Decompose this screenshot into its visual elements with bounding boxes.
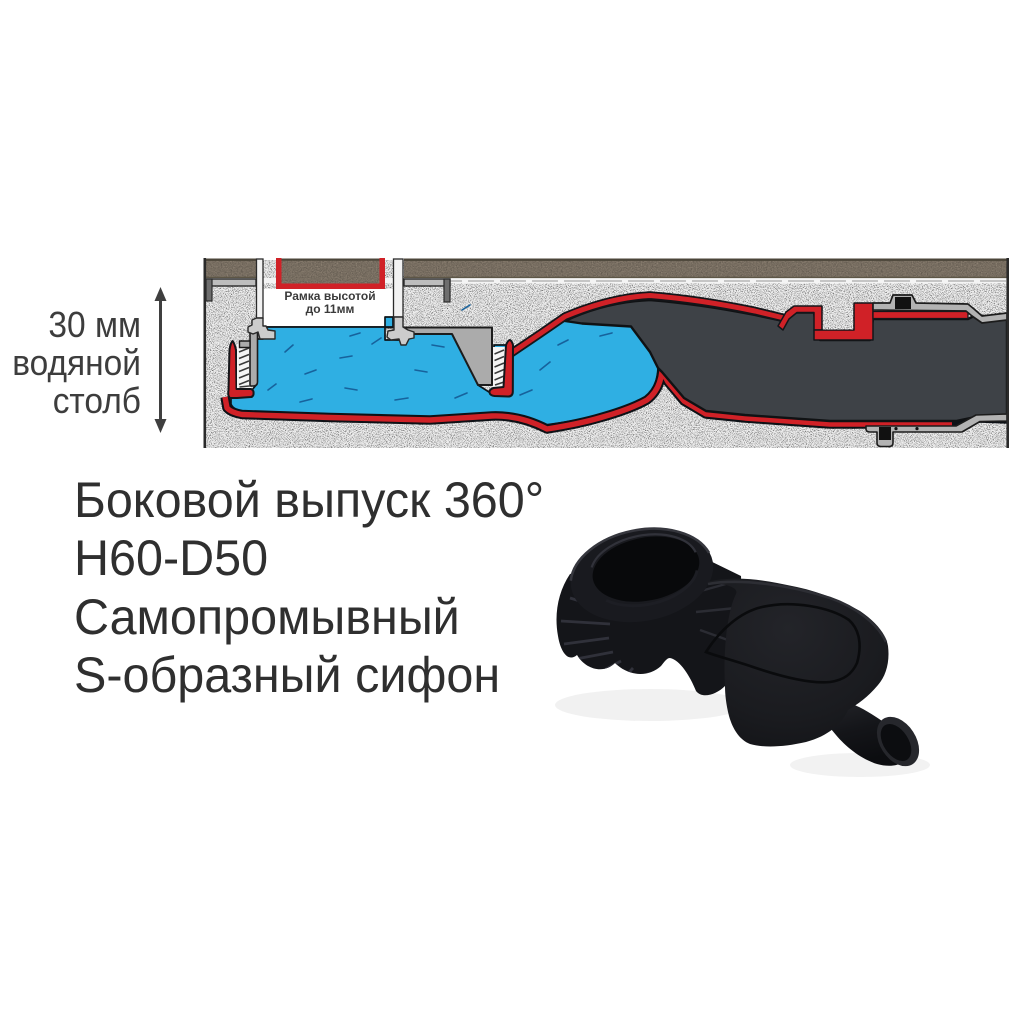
svg-text:до 11мм: до 11мм <box>306 302 355 316</box>
